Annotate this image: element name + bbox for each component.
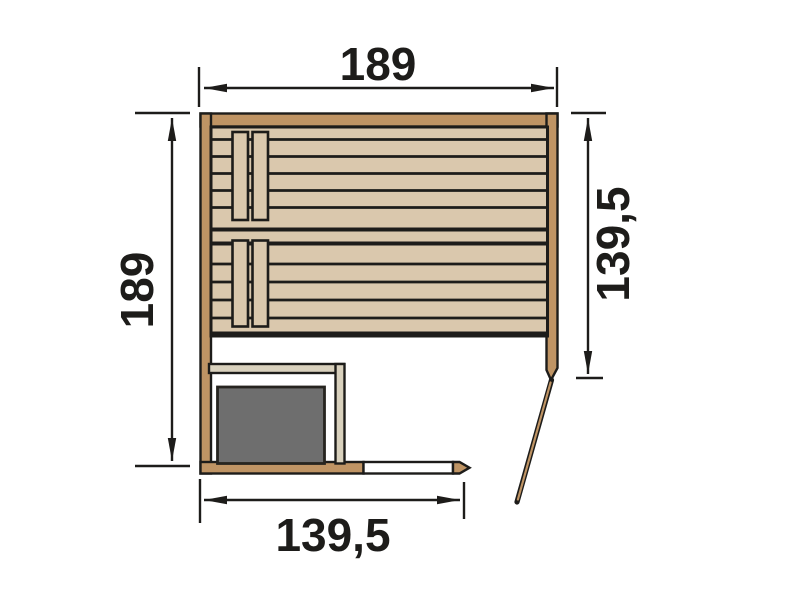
upper-bench-headrest-slat xyxy=(233,132,249,220)
dimension-top-width: 189 xyxy=(199,38,557,107)
arrow-right-icon xyxy=(437,496,460,504)
arrow-left-icon xyxy=(204,496,227,504)
lower-bench-headrest-slat xyxy=(233,241,249,327)
dimension-label-right: 139,5 xyxy=(587,186,639,301)
arrow-up-icon xyxy=(168,118,176,141)
dimension-label-left: 189 xyxy=(111,252,163,329)
dimension-bottom-width: 139,5 xyxy=(200,479,464,561)
dimension-right-depth: 139,5 xyxy=(571,113,639,378)
arrow-down-icon xyxy=(168,438,176,461)
heater-guard-rail-right xyxy=(336,364,345,464)
arrow-left-icon xyxy=(204,84,227,92)
wall-top xyxy=(201,114,558,127)
upper-bench-headrest-slat xyxy=(253,132,269,220)
arrow-up-icon xyxy=(584,118,592,141)
arrow-down-icon xyxy=(584,351,592,374)
sauna-floor-plan: 189 189 139,5 139,5 xyxy=(0,0,800,600)
dimension-label-top: 189 xyxy=(340,38,417,90)
wall-left xyxy=(201,114,212,474)
heater-group xyxy=(209,364,345,464)
floor-plan-canvas: 189 189 139,5 139,5 xyxy=(0,0,800,600)
door-group xyxy=(517,380,552,502)
door-leaf xyxy=(518,383,551,500)
bench-group xyxy=(211,127,548,336)
dimension-left-depth: 189 xyxy=(111,113,190,466)
heater-guard-rail-top xyxy=(209,364,344,373)
arrow-right-icon xyxy=(531,84,554,92)
dimension-label-bottom: 139,5 xyxy=(275,509,390,561)
sauna-heater xyxy=(218,387,325,464)
wall-bottom-door-post xyxy=(453,462,470,474)
glass-panel-bottom xyxy=(364,462,454,474)
lower-bench-headrest-slat xyxy=(253,241,269,327)
